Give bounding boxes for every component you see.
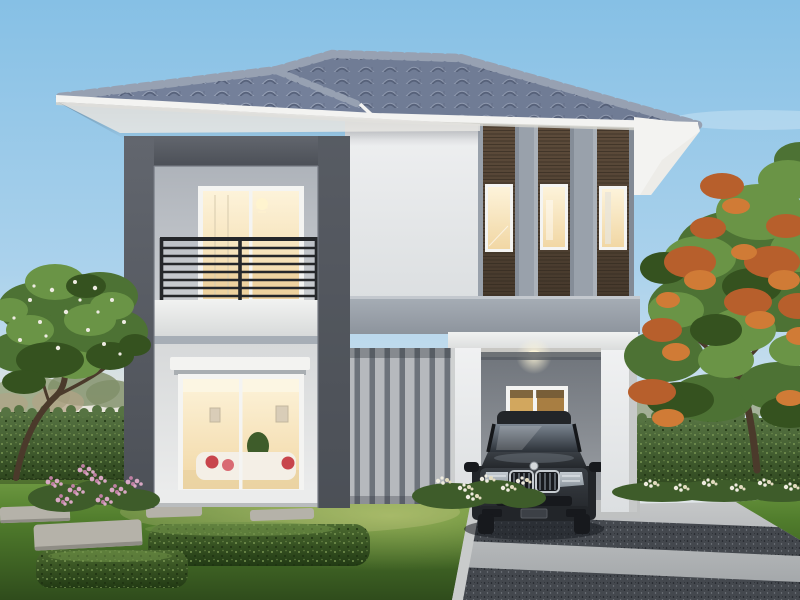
car-badge	[530, 462, 538, 470]
left-wing	[124, 136, 350, 508]
balcony-parapet	[154, 300, 318, 336]
sofa-cushion	[282, 457, 295, 470]
house-render-photo	[0, 0, 800, 600]
feature-wall-upper-right	[478, 112, 634, 298]
floor-band	[345, 296, 640, 334]
interior-art	[210, 408, 220, 422]
balcony-door	[198, 186, 304, 304]
car-plate	[521, 509, 547, 518]
sofa-cushion	[206, 456, 219, 469]
car-wheel	[478, 514, 494, 534]
interior-art	[276, 406, 288, 422]
window-awning	[170, 357, 310, 370]
slat-window	[540, 184, 568, 250]
slat-screen	[345, 348, 451, 504]
car-mirror	[464, 462, 479, 472]
sofa-cushion	[222, 459, 234, 471]
living-room-window	[170, 357, 310, 494]
car-wheel	[574, 514, 590, 534]
house	[56, 54, 700, 540]
slat-window	[485, 184, 513, 252]
slat-window	[599, 186, 627, 250]
headlight	[560, 472, 584, 487]
